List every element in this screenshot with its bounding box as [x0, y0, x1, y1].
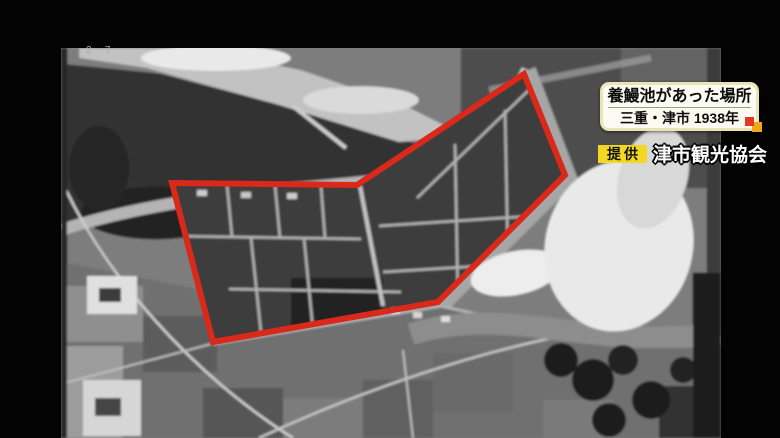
photo-frame-mark: 2-7: [86, 45, 115, 56]
credit-badge: 提供: [598, 145, 647, 163]
caption-title: 養鰻池があった場所: [603, 86, 756, 107]
caption-accent-red-square: [745, 117, 754, 126]
caption-subtitle: 三重・津市 1938年: [603, 108, 756, 128]
credit-row: 提供 津市観光協会: [598, 140, 767, 167]
credit-name: 津市観光協会: [653, 140, 767, 167]
caption-box: 養鰻池があった場所 三重・津市 1938年: [600, 82, 759, 131]
